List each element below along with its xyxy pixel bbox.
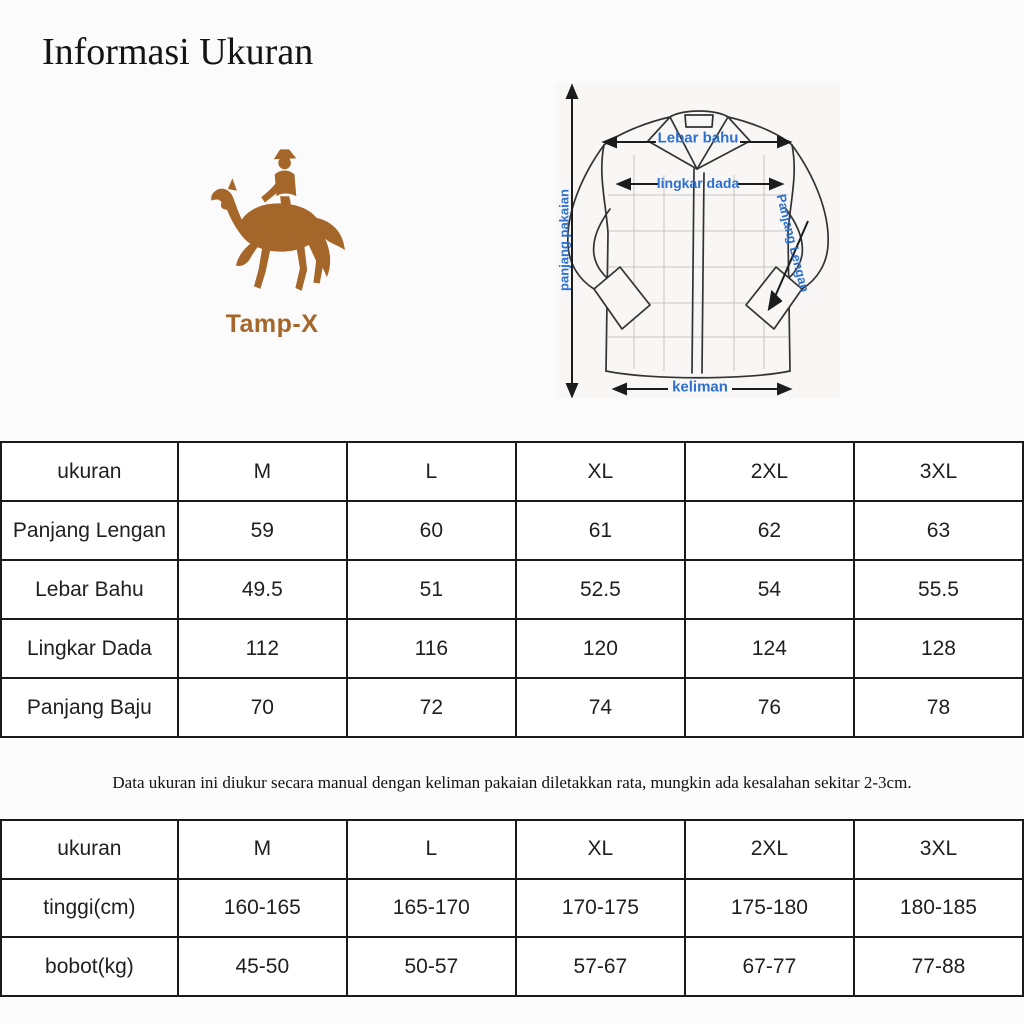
row-label: Lingkar Dada <box>1 619 178 678</box>
measurement-cell: 128 <box>854 619 1023 678</box>
measurement-cell: 67-77 <box>685 937 854 996</box>
measurement-cell: 72 <box>347 678 516 737</box>
horse-rider-logo-icon <box>188 144 356 306</box>
measurement-cell: 160-165 <box>178 879 347 938</box>
table-row: Panjang Baju7072747678 <box>1 678 1023 737</box>
header-row: ukuranMLXL2XL3XL <box>1 442 1023 501</box>
measurement-cell: 170-175 <box>516 879 685 938</box>
measurement-cell: 76 <box>685 678 854 737</box>
fit-table-section: ukuranMLXL2XL3XLtinggi(cm)160-165165-170… <box>0 819 1024 997</box>
measurement-cell: 45-50 <box>178 937 347 996</box>
row-label: Panjang Lengan <box>1 501 178 560</box>
size-column-header: XL <box>516 442 685 501</box>
header-row: ukuranMLXL2XL3XL <box>1 820 1023 879</box>
measurement-cell: 55.5 <box>854 560 1023 619</box>
table-row: tinggi(cm)160-165165-170170-175175-18018… <box>1 879 1023 938</box>
garment-length-label: panjang pakaian <box>558 189 571 291</box>
row-label: Lebar Bahu <box>1 560 178 619</box>
size-column-header: M <box>178 442 347 501</box>
row-label: bobot(kg) <box>1 937 178 996</box>
shirt-measurement-diagram: Lebar bahu lingkar dada panjang pakaian … <box>556 83 840 398</box>
measurement-cell: 60 <box>347 501 516 560</box>
chest-circumference-label: lingkar dada <box>657 176 739 190</box>
measurement-cell: 120 <box>516 619 685 678</box>
size-info-page: { "page": { "title": "Informasi Ukuran",… <box>0 0 1024 1024</box>
size-column-header: L <box>347 820 516 879</box>
measurement-cell: 57-67 <box>516 937 685 996</box>
size-column-header: 3XL <box>854 442 1023 501</box>
brand-name: Tamp-X <box>186 310 358 339</box>
measurement-cell: 51 <box>347 560 516 619</box>
measurement-cell: 124 <box>685 619 854 678</box>
table-row: Lebar Bahu49.55152.55455.5 <box>1 560 1023 619</box>
measurement-cell: 180-185 <box>854 879 1023 938</box>
row-label: Panjang Baju <box>1 678 178 737</box>
hem-label: keliman <box>672 380 728 395</box>
shoulder-width-label: Lebar bahu <box>658 131 739 146</box>
measurement-cell: 50-57 <box>347 937 516 996</box>
corner-header: ukuran <box>1 820 178 879</box>
size-measurement-table: ukuranMLXL2XL3XLPanjang Lengan5960616263… <box>0 441 1024 738</box>
measurement-cell: 49.5 <box>178 560 347 619</box>
measurement-cell: 165-170 <box>347 879 516 938</box>
measurement-cell: 61 <box>516 501 685 560</box>
measurement-cell: 77-88 <box>854 937 1023 996</box>
size-column-header: XL <box>516 820 685 879</box>
row-label: tinggi(cm) <box>1 879 178 938</box>
measurement-cell: 78 <box>854 678 1023 737</box>
measurement-cell: 59 <box>178 501 347 560</box>
table-row: bobot(kg)45-5050-5757-6767-7777-88 <box>1 937 1023 996</box>
measurement-cell: 63 <box>854 501 1023 560</box>
measurement-cell: 116 <box>347 619 516 678</box>
table-row: Panjang Lengan5960616263 <box>1 501 1023 560</box>
measurement-cell: 112 <box>178 619 347 678</box>
height-weight-table: ukuranMLXL2XL3XLtinggi(cm)160-165165-170… <box>0 819 1024 997</box>
size-column-header: L <box>347 442 516 501</box>
measurement-cell: 175-180 <box>685 879 854 938</box>
measurement-note: Data ukuran ini diukur secara manual den… <box>0 773 1024 793</box>
table-row: Lingkar Dada112116120124128 <box>1 619 1023 678</box>
measurement-cell: 52.5 <box>516 560 685 619</box>
corner-header: ukuran <box>1 442 178 501</box>
size-column-header: 2XL <box>685 820 854 879</box>
measurement-cell: 70 <box>178 678 347 737</box>
size-column-header: 2XL <box>685 442 854 501</box>
size-table-section: ukuranMLXL2XL3XLPanjang Lengan5960616263… <box>0 441 1024 738</box>
size-column-header: M <box>178 820 347 879</box>
brand-logo-block: Tamp-X <box>186 144 358 339</box>
page-title: Informasi Ukuran <box>42 30 313 74</box>
measurement-cell: 54 <box>685 560 854 619</box>
measurement-cell: 62 <box>685 501 854 560</box>
measurement-cell: 74 <box>516 678 685 737</box>
size-column-header: 3XL <box>854 820 1023 879</box>
